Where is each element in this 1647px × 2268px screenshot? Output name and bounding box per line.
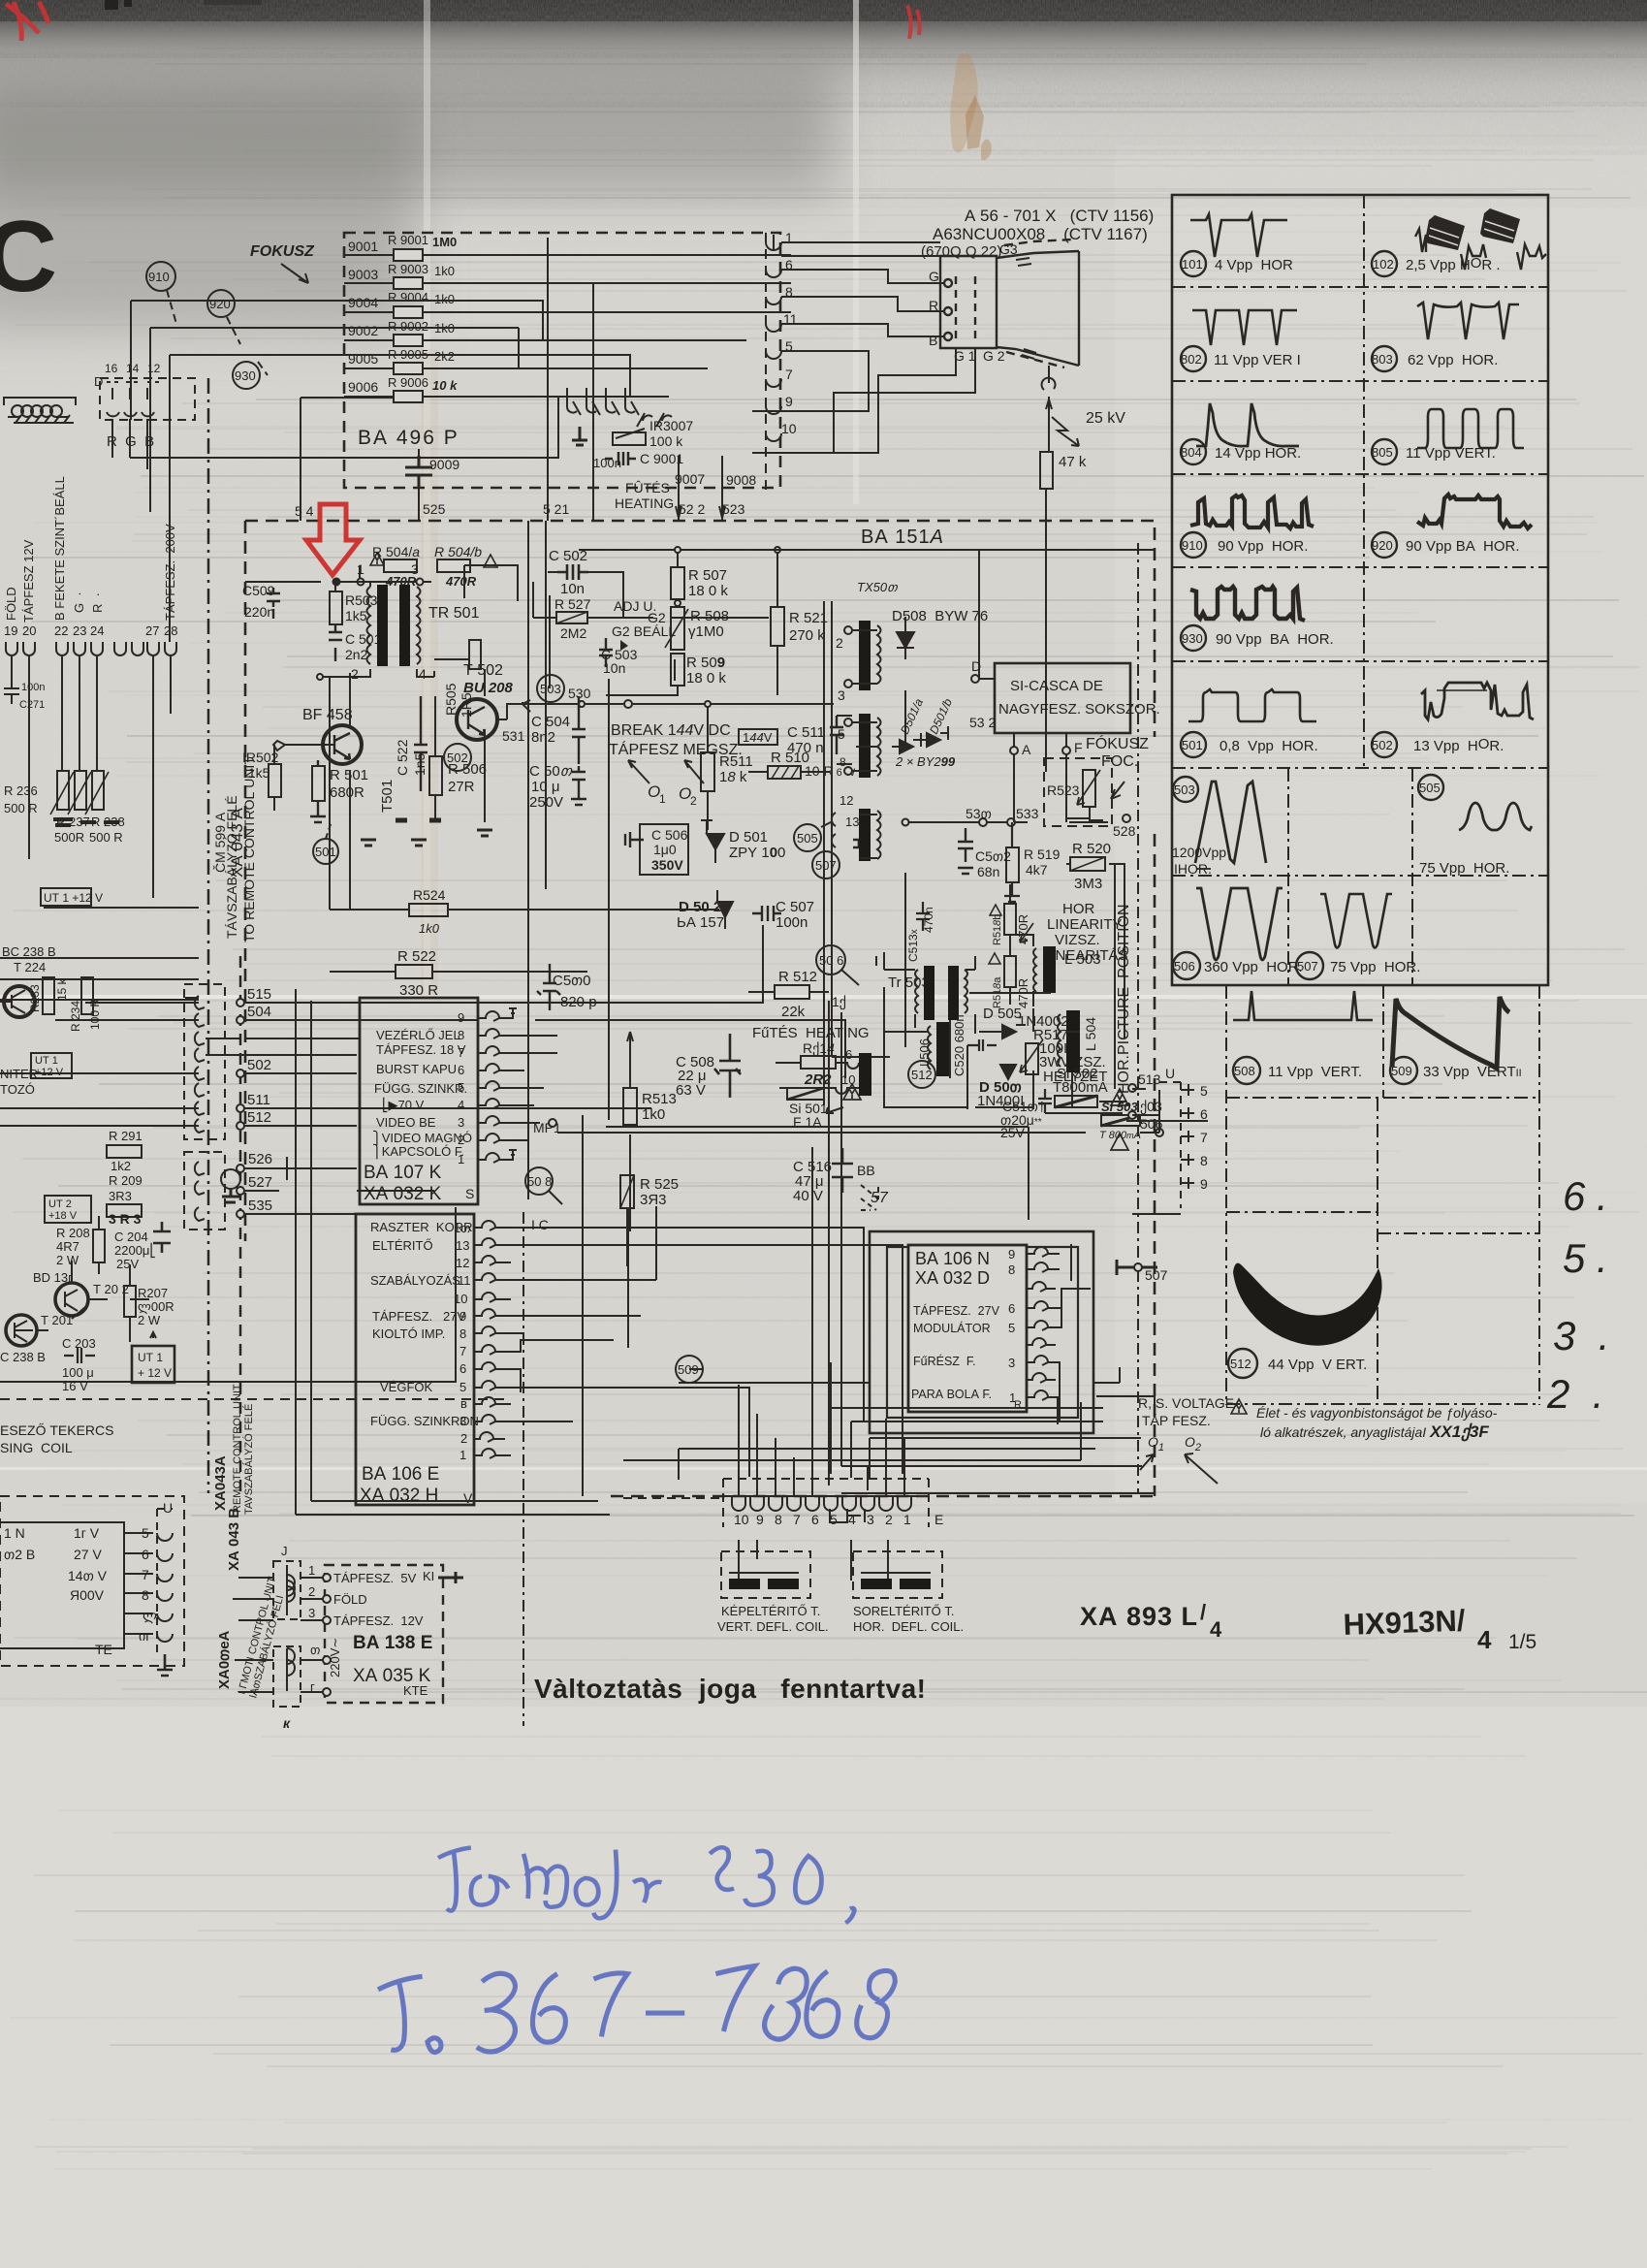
svg-text:9: 9	[458, 1010, 464, 1025]
svg-text:100n: 100n	[21, 682, 45, 693]
svg-text:+18 V: +18 V	[48, 1210, 78, 1222]
svg-text:R523: R523	[1047, 783, 1080, 798]
svg-text:910: 910	[148, 270, 170, 284]
svg-text:500 R: 500 R	[4, 801, 38, 815]
svg-text:γ1M0: γ1M0	[688, 623, 724, 640]
svg-text:XA 032 D: XA 032 D	[915, 1268, 990, 1288]
svg-text:ESEZŐ TEKERCS: ESEZŐ TEKERCS	[0, 1422, 113, 1438]
svg-text:804: 804	[1181, 445, 1202, 460]
svg-text:FűTÉS HEATING: FűTÉS HEATING	[752, 1025, 870, 1041]
svg-text:R 237: R 237	[56, 815, 90, 829]
svg-text:75 Vpp HOR.: 75 Vpp HOR.	[1419, 860, 1509, 877]
svg-text:803: 803	[1372, 352, 1393, 367]
svg-text:G3: G3	[999, 241, 1018, 257]
svg-text:1 N: 1 N	[4, 1525, 25, 1541]
svg-text:FÖLD: FÖLD	[4, 587, 18, 621]
svg-text:8: 8	[1200, 1153, 1208, 1168]
svg-text:502: 502	[247, 1057, 271, 1073]
svg-text:იг: იг	[139, 1628, 150, 1644]
svg-text:3M3: 3M3	[1074, 876, 1102, 892]
svg-text:G2 BEÁLL: G2 BEÁLL	[612, 623, 676, 639]
svg-text:512: 512	[247, 1109, 271, 1126]
svg-text:507: 507	[1145, 1267, 1168, 1283]
svg-text:5 4: 5 4	[295, 503, 314, 519]
svg-text:BA 496 P: BA 496 P	[358, 427, 459, 449]
svg-text:90 Vpp BA HOR.: 90 Vpp BA HOR.	[1216, 631, 1334, 648]
svg-text:BA 107 K: BA 107 K	[364, 1163, 442, 1183]
svg-text:R 522: R 522	[397, 948, 436, 965]
svg-text:FÜGG. SZINKR.: FÜGG. SZINKR.	[374, 1081, 467, 1096]
svg-text:4 Vpp HOR: 4 Vpp HOR	[1215, 257, 1293, 273]
svg-text:V: V	[463, 1490, 473, 1506]
svg-text:6: 6	[1200, 1106, 1208, 1122]
svg-text:6: 6	[458, 1063, 464, 1077]
svg-text:9: 9	[756, 1512, 764, 1527]
svg-text:1k5: 1k5	[345, 608, 367, 623]
svg-text:L 503: L 503	[1064, 951, 1101, 968]
svg-text:9008: 9008	[726, 472, 756, 488]
svg-text:3: 3	[838, 687, 845, 703]
svg-text:T800mA: T800mA	[1053, 1079, 1108, 1096]
svg-text:BA 138 E: BA 138 E	[353, 1633, 432, 1653]
svg-text:HOR.PICTURE POSITION: HOR.PICTURE POSITION	[1116, 904, 1132, 1094]
svg-text:UT 1: UT 1	[35, 1055, 58, 1067]
svg-text:4: 4	[458, 1098, 464, 1112]
svg-text:TÁP FESZ.: TÁP FESZ.	[1142, 1413, 1211, 1428]
svg-text:920: 920	[209, 297, 231, 311]
svg-text:53 2: 53 2	[969, 715, 996, 730]
svg-text:8: 8	[142, 1587, 149, 1603]
svg-text:44 Vpp V ERT.: 44 Vpp V ERT.	[1268, 1357, 1367, 1373]
svg-text:9004: 9004	[348, 295, 378, 310]
svg-text:16: 16	[105, 362, 118, 375]
svg-text:9: 9	[1008, 1247, 1015, 1262]
svg-text:1: 1	[1009, 1390, 1016, 1405]
svg-text:B FEKETE SZINT´BEÁLL: B FEKETE SZINT´BEÁLL	[52, 476, 67, 621]
svg-text:5: 5	[459, 1380, 466, 1394]
svg-text:7: 7	[458, 1045, 464, 1060]
svg-text:14: 14	[126, 362, 140, 375]
svg-text:R 509: R 509	[686, 655, 725, 671]
svg-text:16 V: 16 V	[62, 1379, 88, 1393]
svg-text:9005: 9005	[348, 351, 378, 367]
svg-text:7: 7	[793, 1512, 801, 1527]
svg-text:TE: TE	[95, 1642, 112, 1657]
svg-text:9002: 9002	[348, 323, 378, 338]
svg-text:T 201: T 201	[41, 1313, 73, 1327]
svg-text:47 k: 47 k	[1059, 454, 1087, 470]
svg-text:TÁPFESZ. 5V: TÁPFESZ. 5V	[333, 1571, 417, 1585]
svg-text:FOC.: FOC.	[1101, 753, 1138, 770]
svg-text:Vàltoztatàs joga fenntartva: Vàltoztatàs joga fenntartva!	[534, 1674, 926, 1704]
svg-text:SING COIL: SING COIL	[0, 1440, 73, 1455]
svg-text:68n: 68n	[977, 864, 999, 879]
svg-text:535: 535	[248, 1198, 272, 1214]
svg-text:TÁPFESZ. 27V: TÁPFESZ. 27V	[372, 1309, 465, 1324]
svg-text:C 506: C 506	[651, 827, 688, 843]
svg-text:XA 893 L: XA 893 L	[1080, 1602, 1198, 1631]
svg-text:27: 27	[145, 623, 159, 638]
svg-text:ló alkatrészek, anyaglistájaІ: ló alkatrészek, anyaglistájaІ XX1ქ3F	[1260, 1422, 1489, 1442]
svg-text:12: 12	[839, 793, 853, 808]
svg-text:Rქ14: Rქ14	[803, 1040, 835, 1057]
svg-text:BURST KAPU: BURST KAPU	[376, 1062, 457, 1076]
svg-text:52 2: 52 2	[679, 501, 705, 517]
svg-text:3: 3	[459, 1414, 466, 1428]
svg-text:100n: 100n	[776, 914, 808, 931]
svg-text:1: 1	[659, 792, 666, 806]
svg-text:504: 504	[247, 1004, 271, 1020]
svg-text:3Я3: 3Я3	[640, 1192, 667, 1208]
svg-text:BA 106 E: BA 106 E	[362, 1464, 439, 1485]
svg-text:BA 151A: BA 151A	[861, 527, 944, 548]
svg-text:12: 12	[456, 1256, 469, 1270]
svg-text:2: 2	[308, 1584, 315, 1599]
svg-text:680R: 680R	[330, 784, 364, 801]
svg-text:HEATING: HEATING	[615, 495, 674, 511]
svg-text:TX50თ: TX50თ	[857, 580, 899, 594]
svg-text:D 50 2: D 50 2	[679, 899, 721, 915]
svg-text:BC 238 B: BC 238 B	[2, 944, 56, 959]
svg-text:+12 V: +12 V	[35, 1067, 64, 1078]
svg-text:KÉPELTÉRІTŐ T.: KÉPELTÉRІTŐ T.	[721, 1604, 820, 1618]
svg-text:502: 502	[447, 751, 468, 765]
svg-text:1μ0: 1μ0	[653, 842, 677, 857]
svg-text:13: 13	[456, 1238, 469, 1253]
svg-text:A 56 - 701 X (CTV 1156): A 56 - 701 X (CTV 1156)	[965, 207, 1154, 225]
svg-text:E: E	[934, 1512, 943, 1527]
svg-text:2 W: 2 W	[56, 1253, 79, 1267]
svg-text:Élet - és vagyonbistonságot be: Élet - és vagyonbistonságot be ƒolyáso-	[1256, 1405, 1498, 1421]
svg-text:G ·: G ·	[72, 591, 86, 613]
svg-text:40 V: 40 V	[793, 1188, 823, 1204]
svg-text:1: 1	[903, 1512, 911, 1527]
svg-text:2 .: 2 .	[1546, 1371, 1603, 1417]
svg-text:802: 802	[1181, 352, 1202, 367]
svg-text:FűRÉSZ F.: FűRÉSZ F.	[913, 1354, 976, 1368]
svg-text:1k0: 1k0	[434, 292, 455, 306]
svg-text:27 V: 27 V	[74, 1547, 102, 1562]
svg-text:19: 19	[4, 623, 17, 638]
svg-text:7: 7	[1200, 1130, 1208, 1145]
svg-text:C509: C509	[242, 583, 275, 598]
svg-text:1k0: 1k0	[434, 264, 455, 278]
svg-text:9009: 9009	[429, 457, 459, 472]
svg-text:22k: 22k	[781, 1004, 806, 1020]
svg-text:6: 6	[142, 1547, 149, 1562]
svg-text:PARA BOLA F.: PARA BOLA F.	[911, 1388, 992, 1401]
svg-text:0,8 Vpp HOR.: 0,8 Vpp HOR.	[1219, 738, 1318, 754]
svg-text:8: 8	[459, 1326, 466, 1341]
svg-text:9006: 9006	[348, 379, 378, 395]
svg-text:5: 5	[1008, 1321, 1015, 1335]
svg-text:R 525: R 525	[640, 1176, 679, 1193]
svg-text:1: 1	[459, 1448, 466, 1462]
svg-text:2 × BY299: 2 × BY299	[895, 754, 956, 769]
svg-text:HOR: HOR	[1062, 901, 1095, 917]
svg-text:BA 106 N: BA 106 N	[915, 1249, 990, 1268]
svg-text:XA 032 H: XA 032 H	[360, 1485, 438, 1506]
svg-text:1k0: 1k0	[642, 1106, 665, 1123]
svg-text:C 204: C 204	[114, 1230, 148, 1244]
svg-text:R 519: R 519	[1024, 847, 1061, 862]
svg-text:C 203: C 203	[62, 1336, 96, 1351]
svg-text:4R7: 4R7	[56, 1239, 79, 1254]
svg-text:R 512: R 512	[778, 969, 817, 985]
svg-text:3R3: 3R3	[109, 1189, 132, 1203]
svg-text:ELTÉRІTŐ: ELTÉRІTŐ	[372, 1238, 433, 1253]
svg-text:100n: 100n	[593, 456, 621, 470]
svg-text:UT 2: UT 2	[48, 1198, 72, 1210]
svg-text:LINEARITY: LINEARITY	[1047, 916, 1123, 933]
svg-text:R518b: R518b	[992, 914, 1003, 945]
svg-text:23: 23	[73, 623, 86, 638]
svg-text:6: 6	[1008, 1301, 1015, 1316]
svg-text:2: 2	[885, 1512, 893, 1527]
svg-text:270 k: 270 k	[789, 627, 825, 644]
svg-text:R 208: R 208	[56, 1226, 90, 1240]
svg-text:2R2: 2R2	[804, 1071, 832, 1088]
svg-text:⎫KAPCSOLÓ F.: ⎫KAPCSOLÓ F.	[372, 1143, 464, 1160]
svg-text:XA 035 K: XA 035 K	[353, 1666, 431, 1686]
svg-text:3: 3	[308, 1606, 315, 1620]
svg-text:512: 512	[911, 1068, 933, 1082]
svg-text:533: 533	[1016, 806, 1039, 821]
svg-text:4: 4	[1477, 1625, 1492, 1654]
svg-text:O1: O1	[1148, 1434, 1164, 1453]
svg-text:2: 2	[458, 1133, 464, 1147]
svg-text:2: 2	[351, 666, 359, 682]
svg-text:4: 4	[419, 666, 427, 682]
svg-text:XA043A: XA043A	[212, 1455, 229, 1511]
svg-text:к: к	[283, 1715, 291, 1731]
svg-text:R ·: R ·	[90, 592, 105, 613]
svg-text:920: 920	[1372, 538, 1393, 553]
svg-text:13 Vpp HOR.: 13 Vpp HOR.	[1413, 736, 1504, 754]
svg-text:R 507: R 507	[688, 567, 727, 584]
svg-text:І C: І C	[531, 1217, 549, 1232]
svg-text:503: 503	[1174, 783, 1195, 797]
svg-text:8: 8	[1008, 1262, 1015, 1277]
svg-text:C5თ0: C5თ0	[553, 973, 591, 989]
svg-text:г: г	[310, 1679, 315, 1694]
svg-text:C 504: C 504	[531, 714, 570, 730]
svg-text:U: U	[1165, 1066, 1175, 1081]
svg-text:511: 511	[247, 1092, 270, 1108]
svg-text:220n: 220n	[244, 604, 274, 620]
svg-text:5: 5	[1200, 1083, 1208, 1099]
svg-text:11 Vpp VERT.: 11 Vpp VERT.	[1268, 1064, 1362, 1080]
svg-text:C513x: C513x	[906, 929, 920, 962]
svg-text:3 R 3: 3 R 3	[109, 1211, 142, 1227]
svg-text:XA 043 B: XA 043 B	[226, 1508, 242, 1571]
svg-text:25V: 25V	[116, 1257, 139, 1271]
svg-text:2: 2	[836, 635, 843, 651]
svg-text:910: 910	[1182, 538, 1203, 553]
svg-text:4k7: 4k7	[1026, 862, 1048, 878]
svg-text:F: F	[1074, 740, 1083, 755]
svg-text:505: 505	[797, 831, 818, 846]
svg-text:D501/a: D501/a	[898, 696, 926, 736]
svg-text:1: 1	[308, 1563, 315, 1578]
svg-text:D 505: D 505	[983, 1006, 1022, 1022]
svg-text:B: B	[929, 333, 937, 348]
svg-text:KІ: KІ	[423, 1569, 434, 1583]
svg-text:2 W: 2 W	[138, 1313, 161, 1327]
svg-text:R 9001: R 9001	[388, 233, 428, 247]
svg-text:R 9002: R 9002	[388, 319, 428, 334]
svg-text:1200Vpp: 1200Vpp	[1172, 845, 1226, 860]
svg-text:R511: R511	[719, 753, 753, 770]
svg-text:D 501: D 501	[729, 829, 768, 846]
svg-text:+ 12 V: + 12 V	[138, 1366, 172, 1380]
svg-text:9003: 9003	[348, 267, 378, 282]
svg-text:S: S	[465, 1186, 474, 1201]
svg-text:VIDEO BE: VIDEO BE	[376, 1115, 436, 1130]
svg-text:TR 501: TR 501	[428, 605, 480, 622]
svg-text:1: 1	[458, 1152, 464, 1166]
svg-text:2: 2	[460, 1431, 467, 1446]
svg-text:13: 13	[845, 815, 859, 829]
svg-text:33 Vpp VERTІІ: 33 Vpp VERTІІ	[1423, 1064, 1522, 1080]
svg-text:ლ: ლ	[143, 1608, 157, 1624]
svg-text:R233: R233	[28, 984, 42, 1012]
svg-text:3: 3	[1008, 1356, 1015, 1370]
svg-text:2,5 Vpp HOR .: 2,5 Vpp HOR .	[1406, 255, 1501, 273]
svg-text:ІR3007: ІR3007	[649, 418, 693, 433]
svg-text:TOZÓ: TOZÓ	[0, 1082, 35, 1097]
svg-text:10: 10	[781, 421, 797, 436]
svg-text:REMOTE CONTROL UNIT: REMOTE CONTROL UNIT	[232, 1384, 243, 1513]
svg-text:6: 6	[459, 1361, 466, 1376]
svg-text:ZPY 100: ZPY 100	[729, 845, 785, 861]
svg-text:XA 032 K: XA 032 K	[364, 1184, 442, 1204]
svg-text:MODULÁTOR: MODULÁTOR	[913, 1321, 991, 1335]
svg-text:508: 508	[1234, 1064, 1255, 1078]
svg-text:TÁPFESZ 12V: TÁPFESZ 12V	[21, 539, 36, 623]
svg-text:930: 930	[1182, 631, 1203, 646]
svg-text:90 Vpp HOR.: 90 Vpp HOR.	[1218, 538, 1308, 555]
svg-text:2n2: 2n2	[345, 647, 368, 662]
svg-text:63 V: 63 V	[676, 1082, 706, 1099]
svg-text:9: 9	[459, 1309, 466, 1324]
svg-text:R513: R513	[642, 1091, 677, 1107]
svg-text:507: 507	[815, 858, 837, 873]
svg-text:28: 28	[164, 623, 177, 638]
svg-text:14თ V: 14თ V	[68, 1568, 108, 1583]
svg-text:501: 501	[315, 845, 336, 859]
svg-text:O2: O2	[1185, 1434, 1201, 1453]
svg-text:R505: R505	[443, 683, 459, 716]
svg-text:R 521: R 521	[789, 610, 828, 626]
svg-text:6 .: 6 .	[1563, 1173, 1608, 1219]
svg-text:R 9006: R 9006	[388, 375, 428, 390]
svg-text:R 504/b: R 504/b	[434, 544, 482, 559]
svg-text:3: 3	[867, 1512, 874, 1527]
svg-text:330 R: 330 R	[399, 982, 438, 999]
svg-text:10: 10	[734, 1512, 749, 1527]
svg-text:NAGYFESZ. SOKSZOR.: NAGYFESZ. SOKSZOR.	[998, 701, 1160, 718]
svg-text:D: D	[94, 374, 103, 389]
svg-text:8: 8	[839, 755, 846, 769]
svg-text:9: 9	[785, 394, 793, 409]
svg-text:10n: 10n	[603, 660, 625, 676]
svg-text:15 k: 15 k	[55, 977, 69, 1001]
svg-text:Я00V: Я00V	[70, 1587, 105, 1603]
svg-text:11: 11	[458, 1273, 471, 1288]
svg-text:/: /	[1200, 1600, 1206, 1624]
svg-text:22: 22	[54, 623, 68, 638]
svg-text:R 9003: R 9003	[388, 262, 428, 276]
svg-text:R 520: R 520	[1072, 841, 1111, 857]
svg-text:10 k: 10 k	[432, 378, 458, 393]
svg-text:A: A	[1022, 742, 1031, 757]
svg-text:C 507: C 507	[776, 899, 814, 915]
svg-text:HOR. DEFL. СOІL.: HOR. DEFL. СOІL.	[853, 1619, 964, 1634]
svg-text:FÓKUSZ: FÓKUSZ	[1086, 734, 1149, 752]
svg-text:18 k: 18 k	[719, 769, 747, 785]
svg-text:502: 502	[1372, 738, 1393, 752]
svg-text:509: 509	[1391, 1064, 1412, 1078]
svg-text:FÖLD: FÖLD	[333, 1592, 367, 1607]
svg-text:C 501: C 501	[345, 631, 382, 647]
svg-text:ЬA 157: ЬA 157	[677, 914, 724, 931]
svg-text:7: 7	[142, 1567, 149, 1582]
svg-text:9: 9	[1200, 1176, 1208, 1192]
svg-text:53თ: 53თ	[966, 806, 992, 821]
svg-text:R, S. VOLTAGE: R, S. VOLTAGE	[1138, 1395, 1234, 1411]
svg-text:TÁVSZABÁLYZÓ FELÉ: TÁVSZABÁLYZÓ FELÉ	[224, 795, 239, 939]
svg-text:G 2: G 2	[983, 348, 1005, 364]
svg-text:NITER: NITER	[0, 1067, 38, 1081]
svg-text:R 527: R 527	[554, 596, 591, 612]
svg-text:R 504/a: R 504/a	[372, 544, 420, 559]
svg-text:360 Vpp HOR.: 360 Vpp HOR.	[1204, 959, 1303, 975]
svg-text:1n5: 1n5	[412, 752, 428, 776]
svg-text:5 .: 5 .	[1563, 1235, 1608, 1281]
svg-text:C271: C271	[19, 699, 45, 711]
svg-text:4: 4	[1210, 1617, 1222, 1642]
svg-text:11 Vpp VERT.: 11 Vpp VERT.	[1406, 445, 1496, 462]
svg-text:75 Vpp HOR.: 75 Vpp HOR.	[1330, 959, 1420, 975]
svg-text:L 504: L 504	[1083, 1017, 1098, 1051]
svg-text:1k5: 1k5	[244, 765, 270, 781]
svg-text:VERT. DEFL. СOIL.: VERT. DEFL. СOIL.	[717, 1619, 829, 1634]
svg-text:KIOLTÓ IMP.: KIOLTÓ IMP.	[372, 1326, 445, 1341]
svg-text:8n2: 8n2	[531, 729, 555, 746]
svg-text:C 50თ: C 50თ	[529, 763, 574, 780]
svg-text:14 Vpp HOR.: 14 Vpp HOR.	[1215, 445, 1301, 462]
svg-text:ლ00R: ლ00R	[138, 1299, 174, 1314]
svg-text:20: 20	[22, 623, 36, 638]
svg-text:100 k: 100 k	[649, 433, 683, 449]
svg-text:2: 2	[690, 794, 697, 808]
svg-text:TÁPFESZ. 12V: TÁPFESZ. 12V	[333, 1613, 424, 1628]
svg-text:470 n: 470 n	[787, 740, 824, 756]
svg-text:1ქ: 1ქ	[832, 994, 846, 1010]
svg-text:G: G	[929, 269, 939, 284]
svg-text:100 R: 100 R	[88, 999, 102, 1030]
svg-text:9001: 9001	[348, 239, 378, 254]
svg-text:D: D	[971, 658, 981, 674]
svg-text:(670Q Q 22): (670Q Q 22)	[921, 243, 1001, 260]
svg-text:57: 57	[871, 1190, 889, 1206]
svg-text:101: 101	[1182, 257, 1203, 272]
svg-text:3 .: 3 .	[1553, 1313, 1609, 1358]
svg-text:R503: R503	[345, 592, 378, 608]
svg-text:4: 4	[848, 1512, 856, 1527]
svg-text:UT 1 +12 V: UT 1 +12 V	[44, 891, 103, 905]
